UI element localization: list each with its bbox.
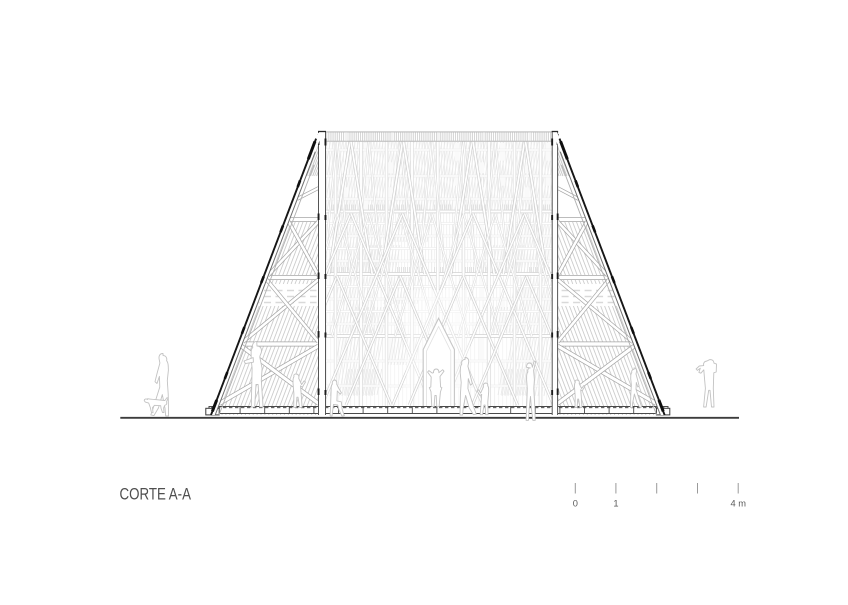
svg-text:0: 0	[573, 499, 578, 509]
svg-text:4 m: 4 m	[730, 499, 746, 509]
svg-text:CORTE A-A: CORTE A-A	[120, 485, 192, 503]
svg-text:1: 1	[613, 499, 618, 509]
